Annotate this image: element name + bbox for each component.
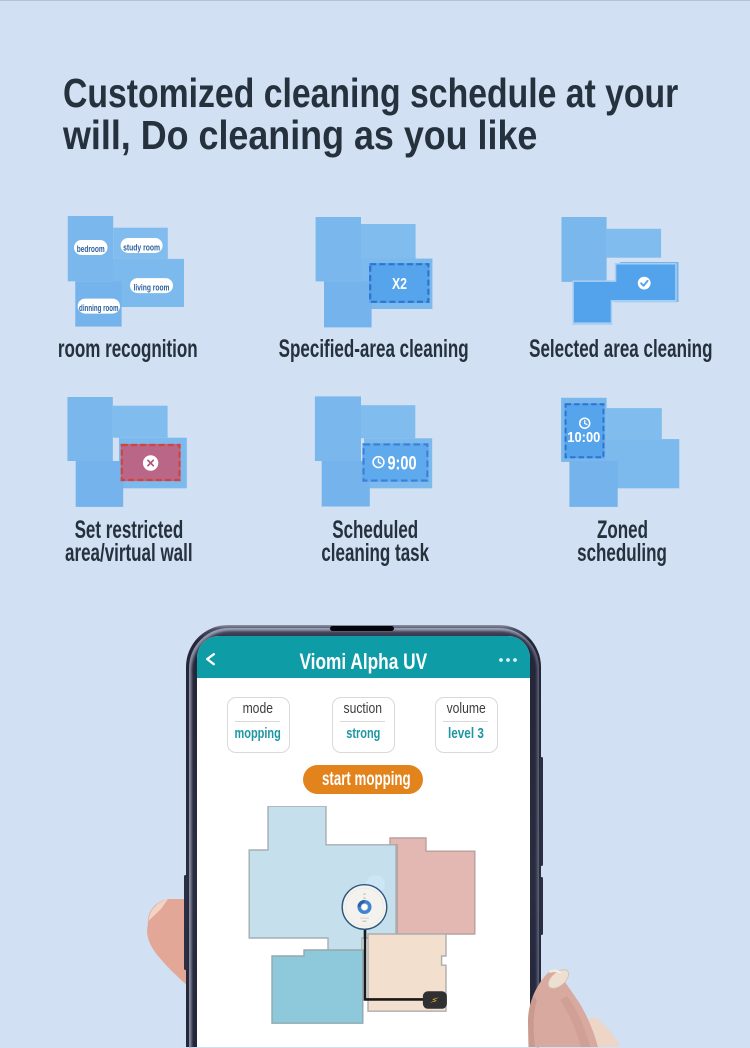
- svg-text:9:00: 9:00: [388, 454, 417, 475]
- svg-text:X2: X2: [392, 276, 407, 293]
- svg-text:dinning room: dinning room: [79, 303, 119, 314]
- svg-text:bedroom: bedroom: [77, 244, 105, 255]
- svg-text:study room: study room: [123, 243, 160, 254]
- svg-text:living room: living room: [134, 283, 170, 294]
- svg-text:10:00: 10:00: [567, 429, 600, 446]
